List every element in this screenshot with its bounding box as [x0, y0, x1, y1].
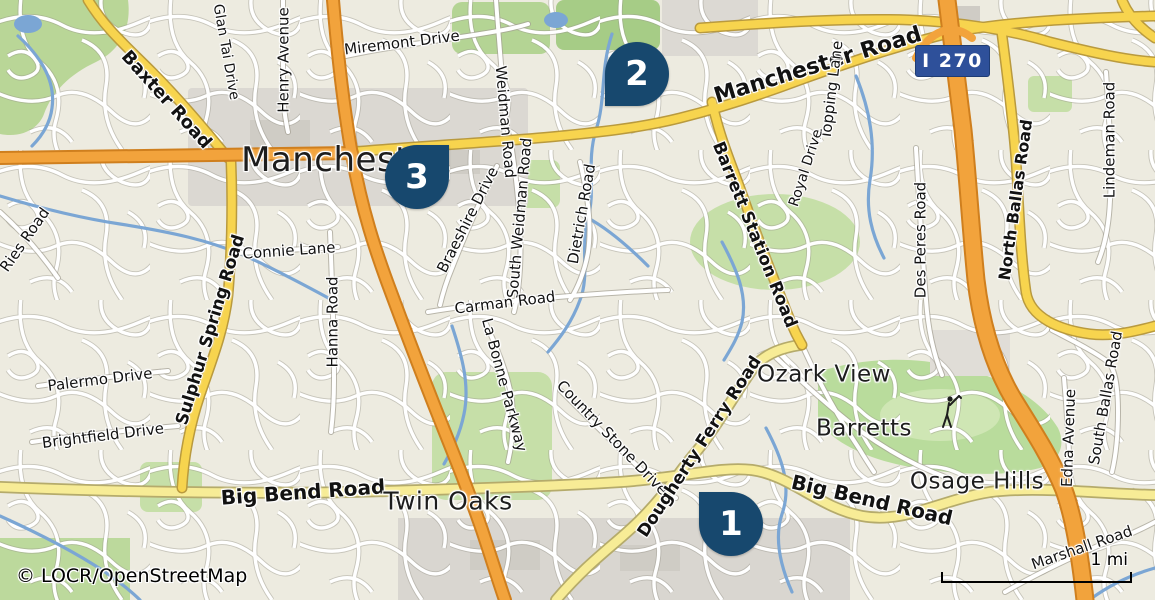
marker-number: 1: [719, 504, 743, 544]
scale-label: 1 mi: [941, 550, 1132, 570]
marker-pin-2[interactable]: 2: [605, 42, 669, 106]
marker-pin-1[interactable]: 1: [699, 492, 763, 556]
marker-number: 3: [405, 157, 429, 197]
scale-bar: 1 mi: [941, 550, 1132, 583]
map-canvas[interactable]: Baxter RoadMiremont DriveGlan Tai DriveH…: [0, 0, 1155, 600]
scale-line: [941, 572, 1132, 583]
marker-number: 2: [625, 54, 649, 94]
map-attribution: © LOCR/OpenStreetMap: [16, 565, 247, 587]
map-markers-layer: 123: [0, 0, 1155, 600]
marker-pin-3[interactable]: 3: [385, 145, 449, 209]
